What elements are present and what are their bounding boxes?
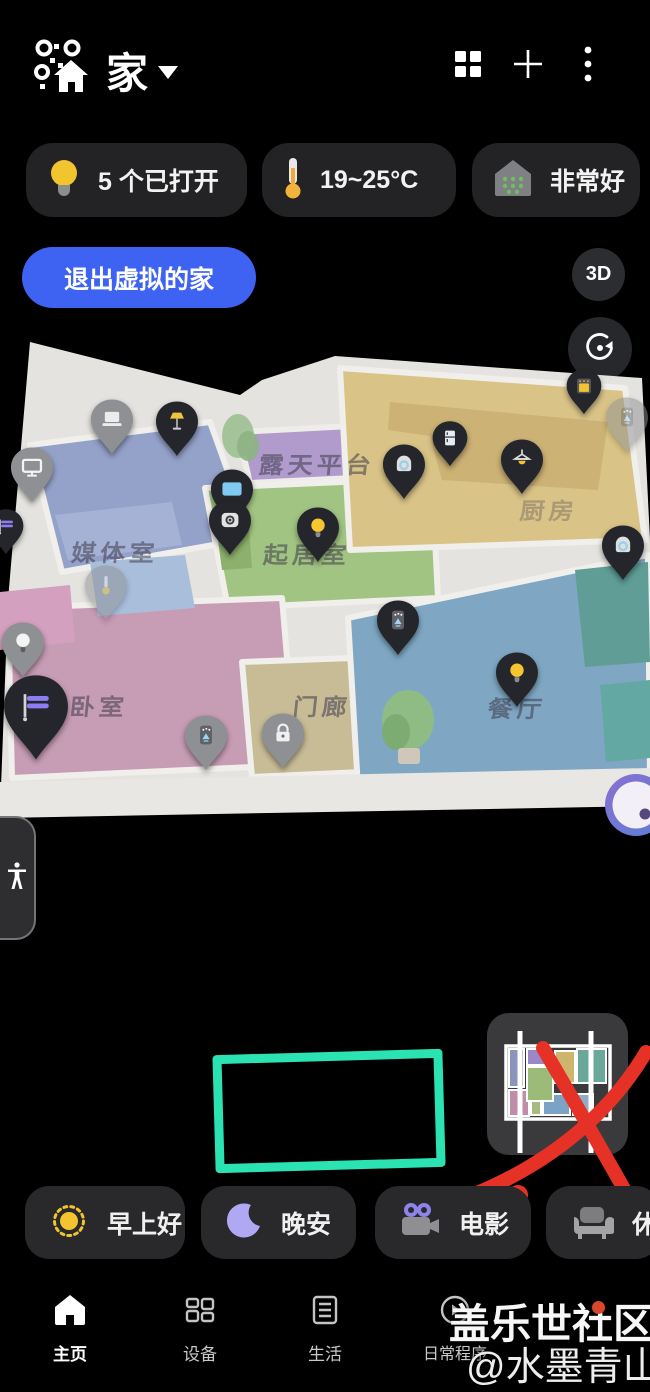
purifier-icon <box>386 605 410 635</box>
teal-rectangle-annotation <box>212 1049 445 1173</box>
more-options-button[interactable] <box>566 42 610 86</box>
scene-label: 休息 <box>632 1205 650 1241</box>
device-pin-layer <box>0 340 650 818</box>
moon-icon <box>225 1202 263 1243</box>
bulb-on-icon <box>306 512 330 542</box>
scene-label: 早上好 <box>107 1205 182 1241</box>
air-quality-status-label: 非常好 <box>550 162 625 198</box>
scene-label: 晚安 <box>281 1205 331 1241</box>
floor-lamp-icon <box>165 406 189 436</box>
devices-icon <box>184 1294 216 1331</box>
exit-virtual-home-button[interactable]: 退出虚拟的家 <box>22 247 256 308</box>
smartthings-home-logo-icon[interactable] <box>34 38 90 94</box>
device-pin-laptop[interactable] <box>89 398 135 455</box>
air-quality-house-icon <box>492 157 534 204</box>
bulb-on-icon <box>505 657 529 687</box>
watermark-dot <box>592 1301 605 1314</box>
device-pin-pendant-light[interactable] <box>499 438 545 495</box>
floor-plan-3d[interactable]: 媒体室露天平台起居室厨房卧室门廊餐厅 <box>0 340 650 818</box>
nav-home[interactable]: 主页 <box>15 1294 125 1365</box>
lightbulb-icon <box>46 158 82 203</box>
tv-icon <box>20 452 44 482</box>
device-pin-tv[interactable] <box>9 446 55 503</box>
scene-movie-button[interactable]: 电影 <box>375 1186 531 1259</box>
caret-down-icon[interactable] <box>158 66 178 79</box>
laptop-icon <box>100 404 124 434</box>
life-icon <box>310 1294 340 1331</box>
device-pin-purifier[interactable] <box>604 396 650 453</box>
cam-dome-icon <box>392 449 416 479</box>
fridge-icon <box>440 425 460 449</box>
device-pin-bulb-on[interactable] <box>295 506 341 563</box>
lights-status-chip[interactable]: 5 个已打开 <box>26 143 247 217</box>
blinds-icon <box>0 513 16 537</box>
accessibility-tab[interactable] <box>0 816 36 940</box>
sun-icon <box>49 1201 89 1244</box>
accessibility-person-icon <box>6 861 28 896</box>
device-pin-bulb-off[interactable] <box>0 621 46 678</box>
air-quality-status-chip[interactable]: 非常好 <box>472 143 640 217</box>
pendant-light-icon <box>510 444 534 474</box>
lights-status-label: 5 个已打开 <box>98 162 219 198</box>
minimap-thumbnail[interactable] <box>487 1013 628 1155</box>
device-pin-camera[interactable] <box>207 499 253 556</box>
oven-icon <box>574 373 594 397</box>
nav-label: 主页 <box>53 1340 87 1365</box>
cam-dome-icon <box>611 530 635 560</box>
temperature-status-label: 19~25°C <box>320 166 418 195</box>
temperature-status-chip[interactable]: 19~25°C <box>262 143 456 217</box>
device-pin-purifier[interactable] <box>183 714 229 771</box>
device-pin-oven[interactable] <box>565 368 603 415</box>
scene-good-morning-button[interactable]: 早上好 <box>25 1186 185 1259</box>
lock-icon <box>271 718 295 748</box>
scene-label: 电影 <box>459 1205 509 1241</box>
purifier-icon <box>615 402 639 432</box>
bulb-off-icon <box>11 627 35 657</box>
device-pin-bulb-on[interactable] <box>494 651 540 708</box>
app-header: 家 <box>0 30 650 110</box>
blinds-icon <box>18 683 54 729</box>
purifier-icon <box>194 720 218 750</box>
device-pin-fridge[interactable] <box>431 420 469 467</box>
nav-devices[interactable]: 设备 <box>145 1294 255 1365</box>
add-button[interactable] <box>506 42 550 86</box>
thermometer-icon <box>94 570 118 600</box>
device-pin-cam-dome[interactable] <box>381 443 427 500</box>
device-pin-purifier[interactable] <box>375 599 421 656</box>
nav-label: 设备 <box>183 1340 217 1365</box>
movie-camera-icon <box>399 1201 441 1244</box>
device-pin-blinds[interactable] <box>0 508 25 555</box>
camera-icon <box>218 505 242 535</box>
device-pin-thermometer[interactable] <box>83 564 129 621</box>
nav-life[interactable]: 生活 <box>270 1294 380 1365</box>
scene-good-night-button[interactable]: 晚安 <box>201 1186 356 1259</box>
scene-rest-button[interactable]: 休息 <box>546 1186 650 1259</box>
thermometer-icon <box>282 156 304 205</box>
device-pin-lock[interactable] <box>260 712 306 769</box>
pan-joystick[interactable] <box>603 772 650 838</box>
sofa-icon <box>570 1201 614 1244</box>
device-pin-cam-dome[interactable] <box>600 524 646 581</box>
nav-label: 生活 <box>308 1340 342 1365</box>
view-mode-3d-button[interactable]: 3D <box>572 248 625 301</box>
home-title[interactable]: 家 <box>106 40 149 101</box>
device-pin-blinds[interactable] <box>1 673 71 761</box>
grid-button[interactable] <box>446 42 490 86</box>
watermark-author: @水墨青山 <box>466 1336 650 1392</box>
device-pin-floor-lamp[interactable] <box>154 400 200 457</box>
home-icon <box>53 1294 87 1331</box>
